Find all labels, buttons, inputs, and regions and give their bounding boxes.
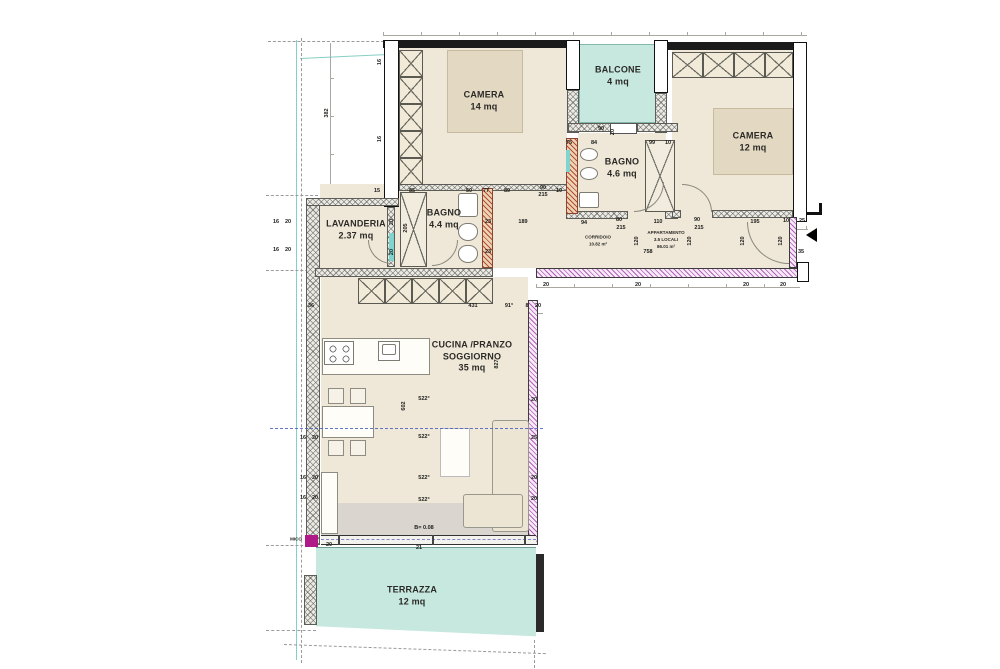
dim-label: 20 [531,397,537,403]
dim-label: 90 [598,126,604,132]
dim-label: 20 [312,495,318,501]
dim-label: 189 [518,219,527,225]
dim-label: 758 [643,249,652,255]
dim-label: 522° [418,434,429,440]
dim-label: 21 [416,545,422,551]
dim-label: 20 [535,303,541,309]
dim-label: 215 [694,225,703,231]
dim-label: 10 [783,218,789,224]
sofa-icon [463,494,523,528]
dining-table-icon [322,406,374,438]
wall-new [789,217,797,268]
room-area: 35 mq [458,363,485,373]
chair-icon [350,388,366,404]
room-area: 4.4 mq [429,219,459,229]
window-mullion [338,535,340,545]
kitchen-sink-basin [382,344,396,355]
dim-label: 15 [374,188,380,194]
room-name: BAGNO [605,156,640,166]
dim-label: 20 [312,475,318,481]
dim-label: 36 [308,303,314,309]
label-appartamento: APPARTAMENTO 3.5 LOCALI 86.01 m² [647,230,684,250]
wall-pillar [793,42,807,222]
cabinet-icon [321,472,338,534]
dim-label: 195 [750,219,759,225]
dim-label: 35 [798,249,804,255]
dim-label: 20 [743,282,749,288]
wall [666,42,807,50]
wardrobe-icon [466,278,493,304]
dim-label: 522° [418,497,429,503]
room-name: CORRIDOIO [585,234,611,239]
dim-label: 16 [300,495,306,501]
wall [306,205,320,545]
boundary-dashed-bottom [284,644,546,654]
window-glass-line [321,539,536,540]
chair-icon [328,440,344,456]
dim-label: 120 [778,236,784,245]
room-area: 2.37 mq [339,230,374,240]
label-bagno-44: BAGNO 4.4 mq [427,207,462,230]
window-band [321,535,536,545]
dim-label: 602 [401,401,407,410]
dim-label: MICO [290,537,302,542]
room-name: CAMERA [464,89,505,99]
wall [315,268,493,277]
wall-pillar [797,262,809,282]
wall-pillar [654,40,668,93]
dim-label: 20 [610,129,616,135]
wardrobe-icon [703,52,734,78]
wardrobe-icon [399,158,423,185]
dim-label: 20 [389,219,395,225]
room-name: BAGNO [427,207,462,217]
room-name: SOGGIORNO [443,351,501,361]
wall [383,40,570,48]
dim-label: 205 [403,223,409,232]
apartment-line: 3.5 LOCALI [654,237,678,242]
dim-label: 120 [740,236,746,245]
dim-label: 20 [531,475,537,481]
terrazza-right-wall [536,554,544,632]
wall [712,210,793,218]
dim-label: 50 [466,188,472,194]
room-area: 12 mq [398,596,425,606]
wardrobe-icon [399,50,423,77]
dim-label: 99 [649,140,655,146]
dim-label: 16 [273,247,279,253]
room-name: CAMERA [733,130,774,140]
wall-new [536,268,798,278]
dim-label: 20 [531,496,537,502]
bidet-icon [580,167,598,180]
dim-label: 77 [483,188,489,194]
wardrobe-icon [412,278,439,304]
room-name: BALCONE [595,64,641,74]
dim-label: 16 [300,475,306,481]
room-area: 4 mq [607,76,629,86]
toilet-icon [580,148,598,161]
dim-label: 16 [377,59,383,65]
dim-label: 215 [616,225,625,231]
dim-label: 20 [312,435,318,441]
dim-label: 20 [543,282,549,288]
dim-label: 91° [505,303,513,309]
room-area: 4.6 mq [607,168,637,178]
room-name: CUCINA /PRANZO [432,339,512,349]
window-mullion [432,535,434,545]
dim-label: 215 [538,192,547,198]
window-mullion [524,535,526,545]
dim-label: 23 [485,219,491,225]
dim-label: 90 [694,217,700,223]
room-area: 12 mq [739,142,766,152]
threshold-marker [305,535,318,547]
dim-label: 80 [616,217,622,223]
wall [637,123,678,132]
dim-label: 20 [389,249,395,255]
wall-pillar [566,40,580,90]
dim-label: 827 [494,359,500,368]
room-name: LAVANDERIA [326,218,386,228]
terrazza-top-edge [316,547,536,548]
dim-label: 110 [654,219,663,225]
dim-label: 20 [780,282,786,288]
dim-label: 16 [300,435,306,441]
wardrobe-icon [399,77,423,104]
dim-label: 522° [418,475,429,481]
chair-icon [350,440,366,456]
dim-label: 16 [273,219,279,225]
stove-icon [324,341,354,365]
label-balcone: BALCONE 4 mq [595,64,641,87]
room-area: 10.82 m² [589,241,607,246]
label-lavanderia: LAVANDERIA 2.37 mq [326,218,386,241]
dim-label: 84 [591,140,597,146]
dim-label: 120 [687,236,693,245]
wall-step [819,203,822,215]
rug-icon [440,428,470,477]
dim-label: 522° [418,396,429,402]
wardrobe-icon [399,131,423,158]
wardrobe-icon [385,278,412,304]
entry-arrow-icon [806,228,817,242]
dim-label: 20 [285,247,291,253]
label-corridoio: CORRIDOIO 10.82 m² [585,234,611,248]
dim-label: 20 [635,282,641,288]
dim-label: 10 [556,188,562,194]
pipe-marker [566,150,570,172]
room-name: TERRAZZA [387,584,437,594]
dim-label: 94 [581,220,587,226]
dim-label: 90 [540,185,546,191]
dim-label: 431 [468,303,477,309]
dim-label: 25 [799,218,805,224]
dashed-line [268,41,384,42]
dim-label: 89 [504,188,510,194]
label-camera-14: CAMERA 14 mq [464,89,505,112]
dim-label: 20 [285,219,291,225]
apartment-line: 86.01 m² [657,243,675,248]
dim-label: 382 [324,108,330,117]
label-soggiorno: CUCINA /PRANZO SOGGIORNO 35 mq [432,339,512,374]
wall-demolition [482,188,493,268]
label-bagno-46: BAGNO 4.6 mq [605,156,640,179]
bidet-icon [458,245,478,263]
dimension-line-bottomwall [536,284,800,288]
property-dashed-line [301,38,302,663]
section-line [270,428,543,429]
dim-label: 25 [531,435,537,441]
dim-label: 20 [326,542,332,548]
dim-label: 23 [485,249,491,255]
dim-label: 75 [566,140,572,146]
apartment-line: APPARTAMENTO [647,230,684,235]
bathroom-sink-icon [579,192,599,208]
wardrobe-icon [358,278,385,304]
chair-icon [328,388,344,404]
dim-label: 8 [525,303,528,309]
wardrobe-icon [672,52,703,78]
wall [568,123,612,132]
wardrobe-icon [734,52,765,78]
room-area: 14 mq [470,101,497,111]
wardrobe-icon [765,52,793,78]
dim-label: 10 [665,140,671,146]
wardrobe-icon [439,278,466,304]
dashed-line [266,195,318,196]
dashed-line [266,630,316,631]
dimension-line-top [383,32,807,36]
wall-pillar [384,40,399,207]
dimension-line-left [330,43,334,193]
boundary-teal-line [296,40,297,660]
dim-label: 120 [634,236,640,245]
label-terrazza: TERRAZZA 12 mq [387,584,437,607]
wall [304,575,317,625]
wardrobe-icon [399,104,423,131]
dim-label: 16 [377,136,383,142]
wall-new [528,300,538,545]
dim-label: B= 0.08 [414,525,433,531]
dim-label: 85 [409,188,415,194]
floor-plan: CAMERA 14 mq BALCONE 4 mq CAMERA 12 mq B… [0,0,1000,669]
dashed-line [534,640,535,668]
label-camera-12: CAMERA 12 mq [733,130,774,153]
